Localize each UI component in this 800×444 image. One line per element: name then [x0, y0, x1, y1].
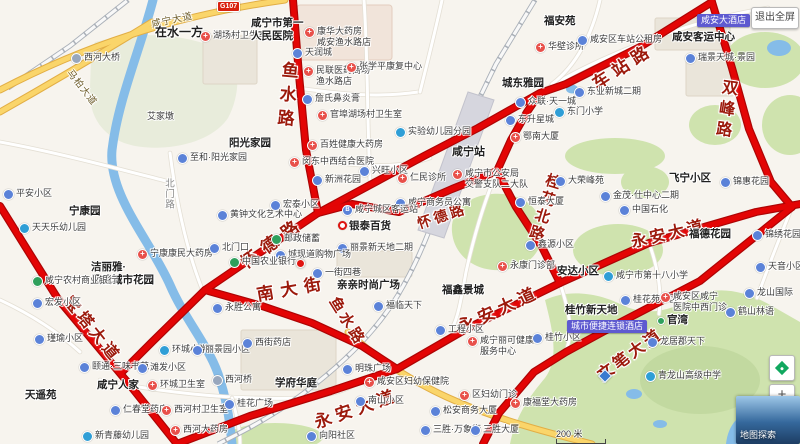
poi-label[interactable]: 松安商务大厦	[430, 405, 497, 417]
poi-label[interactable]: 新洲花园	[312, 174, 361, 186]
gen-icon	[3, 189, 14, 200]
poi-text: 邮政储蓄	[284, 233, 320, 244]
map-stage: 鱼水路车站路双峰路怀德路怀德路桂花北路南大街鱼水路永安大道永安大道永安大道宝塔大…	[0, 0, 800, 444]
gen-icon	[306, 431, 317, 442]
gen-icon	[137, 363, 148, 374]
gen-icon	[292, 48, 303, 59]
poi-text: 福鑫景城	[442, 284, 484, 297]
poi-text: 飞宁小区	[669, 172, 711, 185]
poi-text: 咸安区车站公租房	[590, 34, 662, 45]
med-icon	[467, 336, 478, 347]
gen-icon	[217, 210, 228, 221]
poi-label[interactable]: 瑞景天城·景园	[685, 52, 755, 64]
poi-label[interactable]: 东业新城二期	[574, 86, 641, 98]
poi-text: 仁民诊所	[410, 172, 446, 183]
dot-icon	[657, 317, 665, 325]
poi-text: 宏泰小区	[283, 199, 319, 210]
med-icon	[170, 425, 181, 436]
poi-text: 咸宁市公安局交警支队二大队	[465, 168, 528, 190]
gen-icon	[270, 200, 281, 211]
poi-label[interactable]: 学府华庭	[275, 377, 317, 390]
poi-text: 鄂南大厦	[523, 131, 559, 142]
poi-text: 丽景新天地二期	[350, 242, 413, 253]
map-explore-card[interactable]: 地图探索	[736, 396, 800, 444]
school-icon	[603, 271, 614, 282]
poi-text: 咸宁城区客运站	[355, 204, 418, 215]
poi-text: 工程小区	[448, 324, 484, 335]
panorama-button[interactable]	[769, 355, 795, 381]
poi-label[interactable]: 咸安区妇幼保健院	[364, 376, 449, 388]
poi-text: 实验幼儿园分园	[408, 126, 471, 137]
med-icon	[397, 173, 408, 184]
poi-text: 桂花广场	[237, 398, 273, 409]
med-icon	[535, 42, 546, 53]
poi-label[interactable]: 中国石化	[619, 204, 668, 216]
poi-text: 天润城	[305, 47, 332, 58]
poi-text: 恒泰大厦	[528, 196, 564, 207]
poi-label[interactable]: 仁春堂药店	[110, 404, 168, 416]
poi-label[interactable]: 城东雅园	[502, 77, 544, 90]
poi-label[interactable]: 明珠广场	[342, 363, 391, 375]
gen-icon	[192, 345, 203, 356]
poi-text: 新青藤幼儿园	[95, 430, 149, 441]
poi-label[interactable]: 桂竹新天地	[565, 304, 618, 317]
med-icon	[307, 140, 318, 151]
poi-text: 咸宁市第一人民医院	[251, 17, 304, 42]
gen-icon	[342, 364, 353, 375]
poi-label[interactable]: 实验幼儿园分园	[395, 126, 471, 138]
poi-text: 龙山国际	[757, 287, 793, 298]
poi-text: 锦绣花园	[765, 229, 800, 240]
gen-icon	[177, 153, 188, 164]
poi-label[interactable]: 南山小区	[355, 395, 404, 407]
med-icon	[303, 66, 314, 77]
gen-icon	[373, 301, 384, 312]
poi-text: 永康门诊部	[510, 260, 555, 271]
poi-text: 桂竹新天地	[565, 304, 618, 317]
poi-text: 咸安区妇幼保健院	[377, 376, 449, 387]
poi-label[interactable]: 西河村卫生室	[161, 404, 228, 416]
poi-label[interactable]: 安达小区	[557, 265, 599, 278]
poi-label[interactable]: 宏发小区	[32, 297, 81, 309]
gen-icon	[224, 399, 235, 410]
poi-label[interactable]: 滩发小区	[137, 362, 186, 374]
poi-text: 瑾瑜小区	[47, 333, 83, 344]
school-icon	[554, 107, 565, 118]
poi-label[interactable]: 恒泰大厦	[515, 196, 564, 208]
poi-label[interactable]: 永胜公寓	[212, 302, 261, 314]
poi-text: 鑫源小区	[538, 239, 574, 250]
poi-text: 北门口	[222, 242, 249, 253]
med-icon	[497, 261, 508, 272]
poi-text: 天音小区	[768, 261, 800, 272]
poi-label[interactable]: 咸安区咸宁医院中西门诊	[660, 291, 727, 313]
poi-text: 宁康园	[69, 205, 101, 218]
poi-label[interactable]: 詹氏鼻炎膏	[302, 93, 360, 105]
poi-text: 锦惠花园	[733, 176, 769, 187]
gen-icon	[209, 243, 220, 254]
poi-text: 龙居郡天下	[660, 336, 705, 347]
poi-label[interactable]: 福临天下	[373, 300, 422, 312]
poi-text: 南山小区	[368, 395, 404, 406]
gen-icon	[420, 425, 431, 436]
gen-icon	[505, 115, 516, 126]
poi-label[interactable]: 西河大桥	[71, 52, 120, 64]
poi-label[interactable]: 福德花园	[689, 228, 731, 241]
poi-text: 福临天下	[386, 300, 422, 311]
poi-text: 城东雅园	[502, 77, 544, 90]
poi-text: 三胜大厦	[483, 424, 519, 435]
gen-icon	[435, 325, 446, 336]
panorama-icon	[775, 361, 789, 375]
gen-icon	[515, 97, 526, 108]
bank-icon	[271, 234, 282, 245]
poi-text: 东升星城	[518, 114, 554, 125]
poi-text: 一街四巷	[325, 267, 361, 278]
poi-label[interactable]: 鹤山林语	[725, 306, 774, 318]
poi-text: 滩发小区	[150, 362, 186, 373]
gen-icon	[470, 425, 481, 436]
poi-label[interactable]: 桂花广场	[224, 398, 273, 410]
poi-label[interactable]: 艾家墩	[147, 111, 174, 122]
poi-label[interactable]: 天遥苑	[25, 389, 57, 402]
poi-text: 西河大药房	[183, 424, 228, 435]
poi-label[interactable]: 新青藤幼儿园	[82, 430, 149, 442]
gen-icon	[525, 240, 536, 251]
gen-icon	[574, 87, 585, 98]
gen-icon	[532, 333, 543, 344]
poi-label[interactable]: 青龙山高级中学	[645, 370, 721, 382]
gen-icon	[620, 295, 631, 306]
bridge-icon	[212, 375, 223, 386]
ring-icon	[338, 221, 347, 230]
poi-label[interactable]: 三胜大厦	[470, 424, 519, 436]
poi-text: 天遥苑	[25, 389, 57, 402]
highway-shield-g107: G107	[217, 1, 240, 12]
poi-label[interactable]: 咸宁市第十八小学	[603, 270, 688, 282]
gen-icon	[600, 191, 611, 202]
poi-text: 咸宁站	[452, 146, 485, 159]
poi-label[interactable]: 咸宁城区客运站	[342, 204, 418, 216]
med-icon	[147, 380, 158, 391]
poi-text: 亲亲时尚广场	[337, 279, 400, 292]
school-icon	[645, 371, 656, 382]
poi-text: 阳光家园	[229, 137, 271, 150]
poi-label[interactable]: 宁康园	[69, 205, 101, 218]
gen-icon	[555, 176, 566, 187]
ad-poi-label[interactable]: 咸安大酒店	[697, 14, 750, 27]
poi-text: 咸宁人家	[97, 379, 139, 392]
gen-icon	[685, 53, 696, 64]
poi-label[interactable]: 鑫源小区	[525, 239, 574, 251]
poi-text: 咸宁市第十八小学	[616, 270, 688, 281]
gen-icon	[34, 334, 45, 345]
poi-label[interactable]: 龙居郡天下	[647, 336, 705, 348]
poi-label[interactable]: 大荣峰苑	[555, 175, 604, 187]
poi-label[interactable]: 鄂南大厦	[510, 131, 559, 143]
med-icon	[304, 27, 315, 38]
poi-label[interactable]: 邮政储蓄	[271, 233, 320, 245]
bank-icon	[32, 276, 43, 287]
school-icon	[82, 431, 93, 442]
med-icon	[660, 292, 671, 303]
scale-bar	[556, 439, 606, 444]
poi-label[interactable]: 在水一方	[155, 25, 203, 39]
poi-label[interactable]: 众联·天一城	[515, 96, 576, 108]
poi-text: 环城卫生室	[160, 379, 205, 390]
poi-text: 安达小区	[557, 265, 599, 278]
poi-label[interactable]: 至和·阳光家园	[177, 152, 247, 164]
poi-text: 永胜公寓	[225, 302, 261, 313]
poi-text: 青龙山高级中学	[658, 370, 721, 381]
gen-icon	[744, 288, 755, 299]
poi-text: 城现道购物广场	[288, 249, 351, 260]
poi-label[interactable]: 咸宁丽可健康服务中心	[467, 335, 534, 357]
poi-label[interactable]: 张学平康复中心	[346, 61, 422, 73]
gen-icon	[619, 205, 630, 216]
med-icon	[452, 169, 463, 180]
poi-text: 松安商务大厦	[443, 405, 497, 416]
poi-label[interactable]: 区妇幼门诊	[459, 389, 517, 401]
road-name-北门路: 北门路	[161, 178, 175, 210]
poi-label[interactable]: 福鑫景城	[442, 284, 484, 297]
poi-label[interactable]: 西街药店	[242, 337, 291, 349]
poi-text: 官埠湖场村卫生室	[330, 109, 402, 120]
poi-text: 西河大桥	[84, 52, 120, 63]
poi-text: 西街药店	[255, 337, 291, 348]
school-icon	[159, 345, 170, 356]
gen-icon	[302, 94, 313, 105]
med-icon	[510, 132, 521, 143]
ad-poi-label[interactable]: 城市便捷连锁酒店	[567, 320, 647, 333]
poi-label[interactable]: 向阳社区	[306, 430, 355, 442]
med-icon	[364, 377, 375, 388]
poi-label[interactable]: 中国农业银行	[229, 256, 296, 268]
poi-label[interactable]: 仁民诊所	[397, 172, 446, 184]
poi-label[interactable]: 咸宁市第一人民医院	[251, 17, 304, 42]
poi-label[interactable]: 咸宁农村商业银行	[32, 275, 117, 287]
poi-text: 向阳社区	[319, 430, 355, 441]
exit-fullscreen-button[interactable]: 退出全屏	[751, 7, 799, 29]
poi-text: 天天乐幼儿园	[32, 222, 86, 233]
poi-text: 艾家墩	[147, 111, 174, 122]
med-icon	[161, 405, 172, 416]
poi-label[interactable]: 官湾	[657, 314, 688, 327]
school-icon	[19, 223, 30, 234]
poi-text: 西河桥	[225, 374, 252, 385]
gen-icon	[312, 175, 323, 186]
poi-text: 中国石化	[632, 204, 668, 215]
poi-label[interactable]: 西河桥	[212, 374, 252, 386]
poi-label[interactable]: 锦绣花园	[752, 229, 800, 241]
poi-text: 康福堂大药房	[523, 397, 577, 408]
med-icon	[510, 398, 521, 409]
poi-text: 学府华庭	[275, 377, 317, 390]
poi-text: 金茂·仕中心二期	[613, 190, 679, 201]
school-icon	[395, 127, 406, 138]
poi-text: 福安苑	[544, 15, 576, 28]
poi-label[interactable]: 咸宁站	[452, 146, 485, 159]
poi-label[interactable]: 官埠湖场村卫生室	[317, 109, 402, 121]
poi-label[interactable]: 北门口	[209, 242, 249, 254]
gen-icon	[647, 337, 658, 348]
poi-label[interactable]: 桂竹小区	[532, 332, 581, 344]
poi-text: 桂竹小区	[545, 332, 581, 343]
poi-text: 大荣峰苑	[568, 175, 604, 186]
gen-icon	[212, 303, 223, 314]
poi-text: 福德花园	[689, 228, 731, 241]
bank-icon	[229, 257, 240, 268]
poi-label[interactable]: 一街四巷	[312, 267, 361, 279]
med-icon	[346, 62, 357, 73]
poi-text: 百姓健康大药房	[320, 139, 383, 150]
gen-icon	[32, 298, 43, 309]
poi-label[interactable]: 平安小区	[3, 188, 52, 200]
gen-icon	[752, 230, 763, 241]
poi-label[interactable]: 龙山国际	[744, 287, 793, 299]
med-icon	[459, 390, 470, 401]
poi-text: 宁康康民大药房	[150, 248, 213, 259]
poi-label[interactable]: 天润城	[292, 47, 332, 59]
gen-icon	[725, 307, 736, 318]
poi-text: 张学平康复中心	[359, 61, 422, 72]
med-icon	[200, 31, 211, 42]
poi-text: 咸安区咸宁医院中西门诊	[673, 291, 727, 313]
med-icon	[137, 249, 148, 260]
poi-text: 中国农业银行	[242, 256, 296, 267]
poi-label[interactable]: 锦惠花园	[720, 176, 769, 188]
poi-label[interactable]: 阳光家园	[229, 137, 271, 150]
med-icon	[317, 110, 328, 121]
poi-label[interactable]: 工程小区	[435, 324, 484, 336]
poi-label[interactable]: 东升星城	[505, 114, 554, 126]
gen-icon	[577, 35, 588, 46]
poi-label[interactable]: 天天乐幼儿园	[19, 222, 86, 234]
poi-text: 在水一方	[155, 25, 203, 39]
red-pin-marker[interactable]	[296, 259, 305, 268]
gen-icon	[720, 177, 731, 188]
poi-label[interactable]: 宁康康民大药房	[137, 248, 213, 260]
poi-text: 鹤山林语	[738, 306, 774, 317]
poi-text: 咸宁丽可健康服务中心	[480, 335, 534, 357]
poi-label[interactable]: 咸宁市公安局交警支队二大队	[452, 168, 528, 190]
poi-label[interactable]: 康华大药房咸安渔水路店	[304, 26, 371, 48]
poi-text: 至和·阳光家园	[190, 152, 247, 163]
poi-label[interactable]: 瑾瑜小区	[34, 333, 83, 345]
gen-icon	[430, 406, 441, 417]
poi-label[interactable]: 天音小区	[755, 261, 800, 273]
poi-label[interactable]: 宏泰小区	[270, 199, 319, 211]
poi-label[interactable]: 永康门诊部	[497, 260, 555, 272]
gen-icon	[79, 362, 90, 373]
poi-label[interactable]: 福安苑	[544, 15, 576, 28]
gen-icon	[242, 338, 253, 349]
poi-text: 詹氏鼻炎膏	[315, 93, 360, 104]
poi-text: 明珠广场	[355, 363, 391, 374]
gen-icon	[755, 262, 766, 273]
poi-label[interactable]: 金茂·仕中心二期	[600, 190, 679, 202]
poi-label[interactable]: 咸安区车站公租房	[577, 34, 662, 46]
poi-text: 银泰百货	[349, 220, 391, 233]
poi-text: 众联·天一城	[528, 96, 576, 107]
poi-label[interactable]: 环城卫生室	[147, 379, 205, 391]
poi-text: 瑞景天城·景园	[698, 52, 755, 63]
gen-icon	[312, 268, 323, 279]
gen-icon	[515, 197, 526, 208]
bus-icon	[342, 205, 353, 216]
poi-text: 官湾	[667, 314, 688, 327]
poi-label[interactable]: 咸宁人家	[97, 379, 139, 392]
poi-label[interactable]: 飞宁小区	[669, 172, 711, 185]
poi-text: 新洲花园	[325, 174, 361, 185]
poi-label[interactable]: 康福堂大药房	[510, 397, 577, 409]
poi-label[interactable]: 咸安客运中心	[672, 31, 735, 44]
poi-label[interactable]: 西河大药房	[170, 424, 228, 436]
poi-label[interactable]: 亲亲时尚广场	[337, 279, 400, 292]
poi-text: 宏发小区	[45, 297, 81, 308]
bridge-icon	[71, 53, 82, 64]
poi-text: 西河村卫生室	[174, 404, 228, 415]
poi-label[interactable]: 银泰百货	[338, 220, 391, 233]
gen-icon	[355, 396, 366, 407]
med-icon	[289, 157, 300, 168]
poi-text: 咸宁农村商业银行	[45, 275, 117, 286]
poi-text: 咸安客运中心	[672, 31, 735, 44]
gen-icon	[110, 405, 121, 416]
poi-label[interactable]: 百姓健康大药房	[307, 139, 383, 151]
map-explore-label: 地图探索	[740, 428, 776, 441]
poi-text: 东业新城二期	[587, 86, 641, 97]
poi-text: 康华大药房咸安渔水路店	[317, 26, 371, 48]
poi-text: 平安小区	[16, 188, 52, 199]
